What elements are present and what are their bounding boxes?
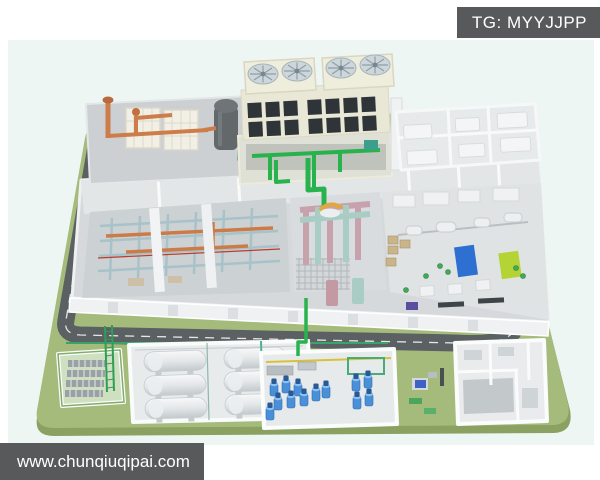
lime-machine — [498, 251, 521, 280]
auxiliary-rooms — [396, 104, 540, 170]
telegram-badge: TG: MYYJJPP — [457, 7, 600, 38]
green-unit — [424, 408, 436, 414]
plant-scene-svg — [8, 40, 594, 445]
turbine-hall — [82, 198, 290, 298]
blue-unit — [415, 380, 426, 388]
telegram-badge-label: TG: MYYJJPP — [472, 13, 587, 32]
pump-station — [261, 349, 397, 428]
dark-vessel — [214, 99, 238, 150]
website-watermark-bar: www.chunqiuqipai.com — [0, 443, 204, 480]
piping-skid — [86, 96, 252, 184]
website-url-label: www.chunqiuqipai.com — [17, 452, 190, 471]
plant-render-image — [8, 40, 594, 445]
blue-machine — [454, 245, 478, 277]
purple-unit — [406, 302, 418, 310]
white-equipment-blob — [320, 209, 340, 218]
page: TG: MYYJJPP www.chunqiuqipai.com — [0, 0, 600, 480]
central-process-hall — [290, 192, 386, 306]
mauve-duct — [326, 280, 338, 306]
utility-building — [455, 340, 547, 424]
green-unit — [409, 398, 422, 404]
corridor-floor — [463, 378, 514, 414]
teal-duct — [352, 278, 364, 304]
cooling-tower-block — [238, 54, 402, 192]
